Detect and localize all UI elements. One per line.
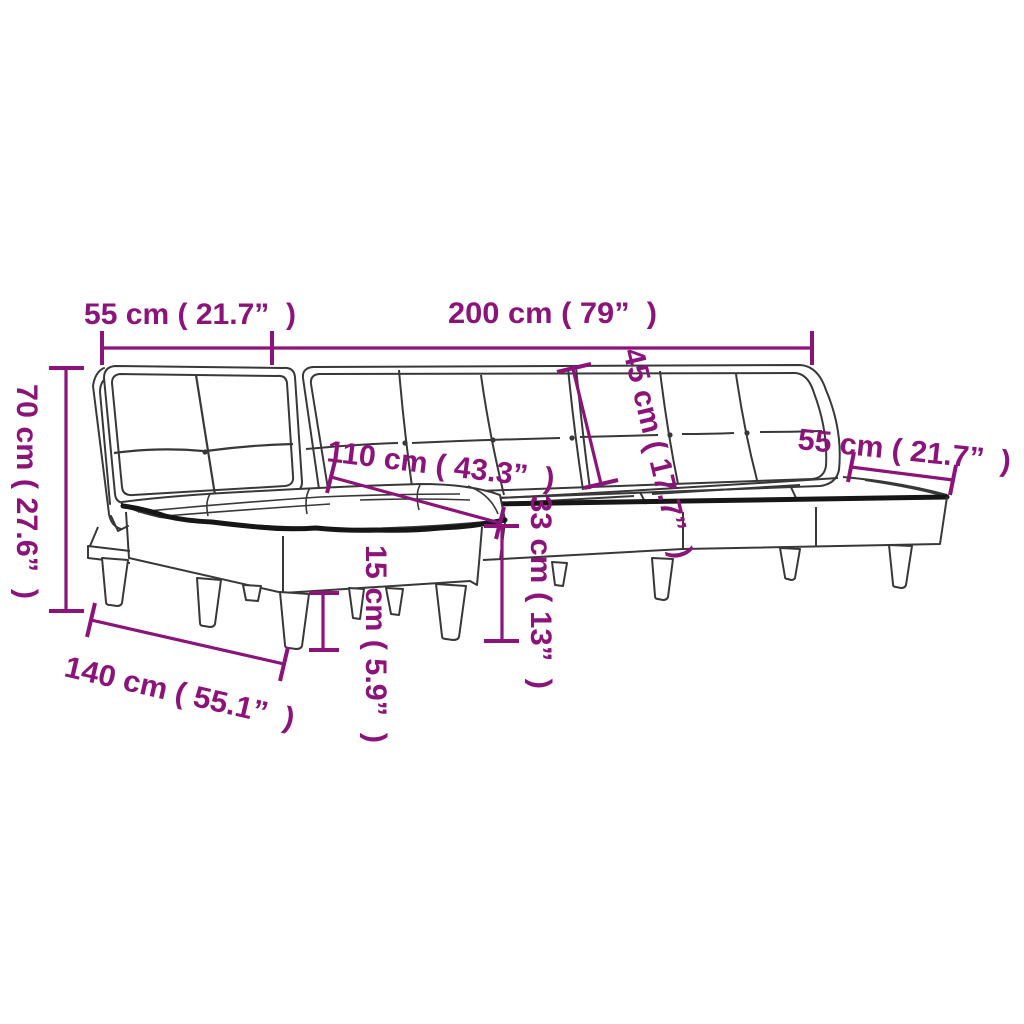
svg-text:55 cm ( 21.7” ): 55 cm ( 21.7” ) bbox=[84, 298, 296, 331]
svg-text:33 cm ( 13” ): 33 cm ( 13” ) bbox=[524, 495, 557, 689]
svg-text:200 cm ( 79” ): 200 cm ( 79” ) bbox=[448, 297, 657, 330]
svg-text:70 cm ( 27.6” ): 70 cm ( 27.6” ) bbox=[10, 384, 43, 599]
svg-text:15 cm ( 5.9” ): 15 cm ( 5.9” ) bbox=[359, 545, 392, 743]
